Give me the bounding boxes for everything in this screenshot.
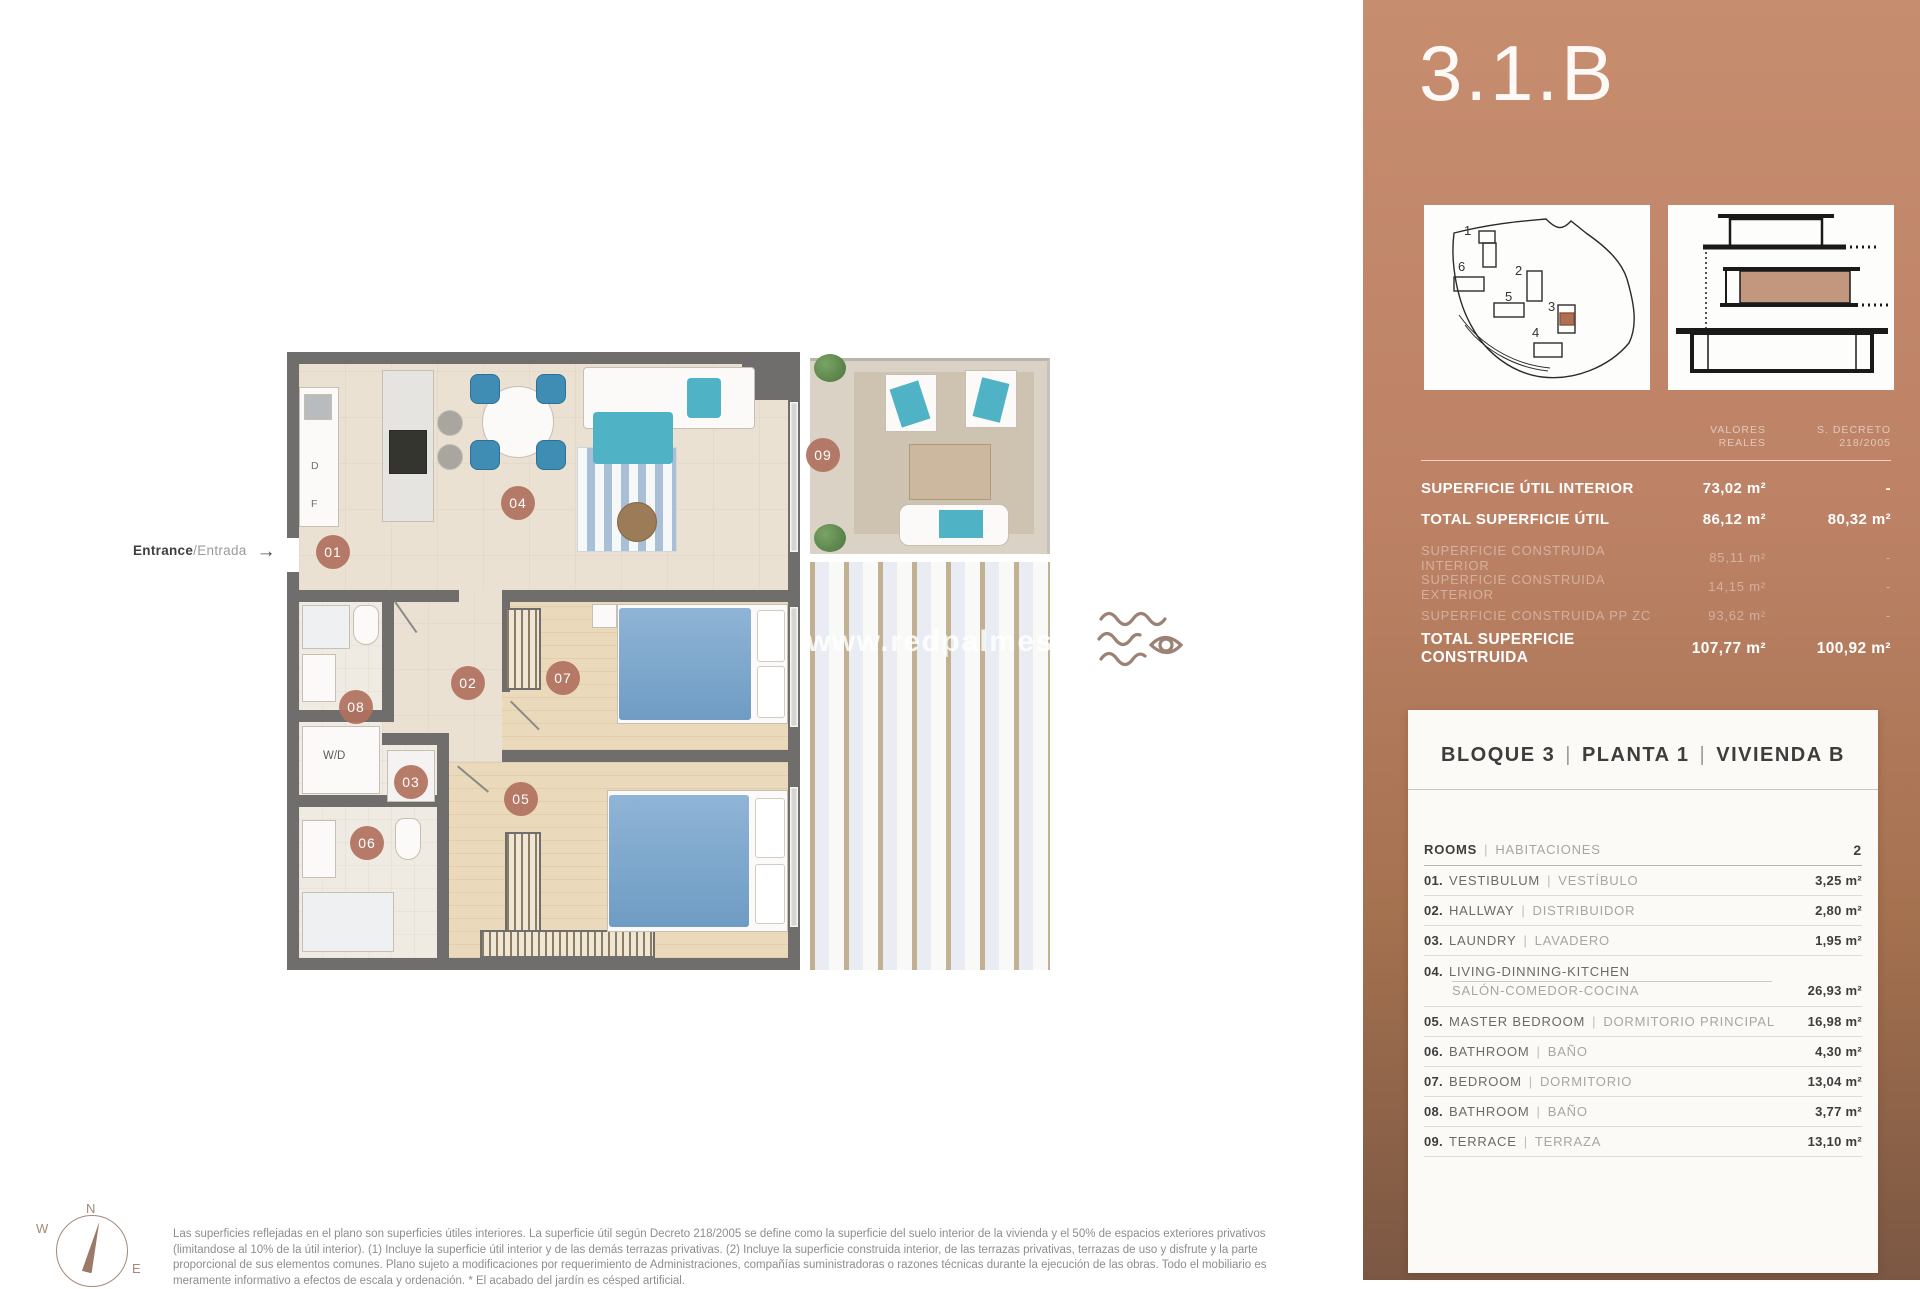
- bed-7-blanket: [619, 608, 751, 720]
- area-real: 73,02 m²: [1656, 480, 1766, 497]
- info-panel: 3.1.B 1 2 3 4 5 6: [1363, 0, 1920, 1280]
- site-building-6: 6: [1458, 259, 1465, 274]
- area-decreto: -: [1766, 579, 1891, 594]
- room-es: BAÑO: [1548, 1104, 1588, 1119]
- room-bubble-05: 05: [504, 782, 538, 816]
- room-pipe: |: [1530, 1104, 1548, 1119]
- unit-card: BLOQUE 3|PLANTA 1|VIVIENDA B ROOMS | HAB…: [1408, 710, 1878, 1273]
- room-en: TERRACE: [1449, 1134, 1517, 1149]
- toilet-6: [395, 818, 421, 860]
- site-building-4: 4: [1532, 325, 1539, 340]
- disclaimer-line: proporcional de sus elementos comunes. P…: [173, 1258, 1353, 1274]
- room-bubble-02: 02: [451, 666, 485, 700]
- room-en: BATHROOM: [1449, 1044, 1530, 1059]
- rooms-table: ROOMS | HABITACIONES 2 01. VESTIBULUM | …: [1424, 834, 1862, 1157]
- room-es: DISTRIBUIDOR: [1533, 903, 1636, 918]
- area-real: 14,15 m²: [1656, 579, 1766, 594]
- room-bubble-08: 08: [339, 690, 373, 724]
- cooktop: [389, 430, 427, 474]
- room-bubble-07: 07: [546, 661, 580, 695]
- site-building-2: 2: [1515, 263, 1522, 278]
- room-area: 16,98 m²: [1808, 1014, 1862, 1029]
- master-window: [790, 787, 798, 927]
- room-bubble-01: 01: [316, 535, 350, 569]
- room-pipe: |: [1530, 1044, 1548, 1059]
- room-row-07: 07. BEDROOM | DORMITORIO 13,04 m²: [1424, 1067, 1862, 1097]
- kitchen-sink: [304, 394, 332, 420]
- header-pipe: |: [1690, 744, 1717, 766]
- room-en: BEDROOM: [1449, 1074, 1522, 1089]
- bed-master-blanket: [609, 795, 749, 927]
- entrance-arrow-icon: →: [257, 541, 276, 562]
- unit-title: 3.1.B: [1419, 28, 1616, 119]
- wardrobe-bed7: [505, 608, 541, 690]
- areas-col2-line1: S. DECRETO: [1817, 424, 1891, 436]
- site-building-3: 3: [1548, 299, 1555, 314]
- area-label: TOTAL SUPERFICIE CONSTRUIDA: [1421, 631, 1656, 667]
- entrance-label: Entrance/Entrada→: [133, 541, 276, 563]
- dining-chair: [470, 374, 500, 404]
- room-en: HALLWAY: [1449, 903, 1514, 918]
- bed-7-pillow: [757, 666, 785, 718]
- wardrobe-master-bottom: [480, 930, 655, 958]
- room-pipe: |: [1517, 1134, 1535, 1149]
- watermark: www.redpalmestate: [807, 625, 1050, 659]
- room-num: 02.: [1424, 903, 1443, 918]
- area-label: SUPERFICIE CONSTRUIDA PP ZC: [1421, 608, 1656, 623]
- plan-page: Entrance/Entrada→: [0, 0, 1363, 1280]
- room-en: BATHROOM: [1449, 1104, 1530, 1119]
- area-label: SUPERFICIE CONSTRUIDA EXTERIOR: [1421, 572, 1656, 602]
- room-row-09: 09. TERRACE | TERRAZA 13,10 m²: [1424, 1127, 1862, 1157]
- compass-rose: N W E: [18, 1203, 158, 1280]
- room-row-02: 02. HALLWAY | DISTRIBUIDOR 2,80 m²: [1424, 896, 1862, 926]
- rooms-header-en: ROOMS: [1424, 842, 1477, 857]
- room-row-08: 08. BATHROOM | BAÑO 3,77 m²: [1424, 1097, 1862, 1127]
- site-building-1: 1: [1464, 223, 1471, 238]
- room-en: MASTER BEDROOM: [1449, 1014, 1585, 1029]
- room-area: 3,77 m²: [1815, 1104, 1862, 1119]
- wall-bath8-top: [299, 590, 459, 602]
- rooms-table-header: ROOMS | HABITACIONES 2: [1424, 834, 1862, 866]
- room-en: VESTIBULUM: [1449, 873, 1540, 888]
- room-num: 08.: [1424, 1104, 1443, 1119]
- wall-bath8-right: [382, 590, 394, 720]
- areas-divider: [1421, 460, 1891, 461]
- wall-left-lower: [287, 572, 299, 970]
- area-row-util-interior: SUPERFICIE ÚTIL INTERIOR 73,02 m² -: [1421, 473, 1891, 504]
- plant: [814, 354, 846, 382]
- area-row-construida-ppzc: SUPERFICIE CONSTRUIDA PP ZC 93,62 m² -: [1421, 601, 1891, 630]
- area-decreto: -: [1766, 550, 1891, 565]
- plant: [814, 524, 846, 552]
- dining-chair: [470, 440, 500, 470]
- coffee-table: [617, 502, 657, 542]
- wall-living-bed7: [502, 590, 800, 602]
- room-pipe: |: [1516, 933, 1534, 948]
- terrace-sliding-door: [790, 402, 798, 552]
- room-pipe: |: [1522, 1074, 1540, 1089]
- wall-bed7-master: [502, 750, 800, 762]
- room-en: LAUNDRY: [1449, 933, 1517, 948]
- area-real: 93,62 m²: [1656, 608, 1766, 623]
- disclaimer-line: meramente informativo a efectos de escal…: [173, 1274, 1353, 1289]
- rooms-header-es: HABITACIONES: [1495, 842, 1600, 857]
- area-real: 107,77 m²: [1656, 640, 1766, 658]
- fridge-label: F: [311, 498, 317, 510]
- room-es: SALÓN-COMEDOR-COCINA: [1452, 983, 1639, 998]
- room-num: 06.: [1424, 1044, 1443, 1059]
- wardrobe-master: [505, 832, 541, 932]
- bar-stool: [437, 410, 463, 436]
- room-area: 13,04 m²: [1808, 1074, 1862, 1089]
- room-area: 2,80 m²: [1815, 903, 1862, 918]
- room-pipe: |: [1514, 903, 1532, 918]
- area-decreto: 100,92 m²: [1766, 640, 1891, 658]
- room-num: 03.: [1424, 933, 1443, 948]
- area-decreto: 80,32 m²: [1766, 511, 1891, 528]
- site-building-5: 5: [1505, 289, 1512, 304]
- header-pipe: |: [1555, 744, 1582, 766]
- bar-stool: [437, 444, 463, 470]
- area-row-total-construida: TOTAL SUPERFICIE CONSTRUIDA 107,77 m² 10…: [1421, 630, 1891, 667]
- room-pipe: |: [1585, 1014, 1603, 1029]
- disclaimer-line: Las superficies reflejadas en el plano s…: [173, 1227, 1353, 1243]
- compass-east: E: [132, 1261, 141, 1276]
- sea-view-icon: [1095, 603, 1195, 678]
- site-plan-map: 1 2 3 4 5 6: [1424, 205, 1650, 390]
- room-row-04: 04. LIVING-DINNING-KITCHEN SALÓN-COMEDOR…: [1424, 956, 1862, 1007]
- area-real: 86,12 m²: [1656, 511, 1766, 528]
- room-row-01: 01. VESTIBULUM | VESTÍBULO 3,25 m²: [1424, 866, 1862, 896]
- floor-plan: W/D D F www.redpalmestate 01 02 03 04 05…: [287, 352, 1057, 970]
- shower-8: [302, 605, 350, 649]
- building-section-map: [1668, 205, 1894, 390]
- area-row-construida-interior: SUPERFICIE CONSTRUIDA INTERIOR 85,11 m² …: [1421, 543, 1891, 572]
- shower-6: [302, 892, 394, 952]
- room-pipe: |: [1540, 873, 1558, 888]
- room-num: 01.: [1424, 873, 1443, 888]
- unit-letter: VIVIENDA B: [1716, 744, 1845, 766]
- bedroom7-window: [790, 607, 798, 727]
- toilet-8: [353, 605, 379, 645]
- rooms-count: 2: [1853, 842, 1862, 858]
- room-num: 05.: [1424, 1014, 1443, 1029]
- area-decreto: -: [1766, 608, 1891, 623]
- pergola-area: [810, 562, 1050, 970]
- unit-block: BLOQUE 3: [1441, 744, 1555, 766]
- rooms-header-pipe: |: [1477, 842, 1495, 857]
- sofa-cushion: [687, 378, 721, 418]
- areas-col1-line1: VALORES: [1710, 424, 1766, 436]
- area-label: SUPERFICIE CONSTRUIDA INTERIOR: [1421, 543, 1656, 573]
- room-row-06: 06. BATHROOM | BAÑO 4,30 m²: [1424, 1037, 1862, 1067]
- room-bubble-09: 09: [806, 438, 840, 472]
- areas-col1-line2: REALES: [1719, 437, 1766, 449]
- washer-dryer-label: W/D: [323, 750, 345, 762]
- compass-north: N: [86, 1201, 95, 1216]
- room-es: TERRAZA: [1535, 1134, 1601, 1149]
- wall-top: [287, 352, 800, 364]
- room-area: 4,30 m²: [1815, 1044, 1862, 1059]
- room-num: 09.: [1424, 1134, 1443, 1149]
- terrace-table: [909, 444, 991, 500]
- room-en: LIVING-DINNING-KITCHEN: [1449, 964, 1630, 979]
- areas-col2-line2: 218/2005: [1839, 437, 1891, 449]
- room-es: LAVADERO: [1535, 933, 1610, 948]
- nightstand: [592, 604, 617, 628]
- room-es: DORMITORIO PRINCIPAL: [1603, 1014, 1775, 1029]
- room-area: 13,10 m²: [1808, 1134, 1862, 1149]
- room-area: 1,95 m²: [1815, 933, 1862, 948]
- wall-bottom: [287, 958, 800, 970]
- areas-col2-header: S. DECRETO 218/2005: [1766, 424, 1891, 450]
- area-row-construida-exterior: SUPERFICIE CONSTRUIDA EXTERIOR 14,15 m² …: [1421, 572, 1891, 601]
- entrance-label-en: Entrance: [133, 543, 193, 558]
- room-row-03: 03. LAUNDRY | LAVADERO 1,95 m²: [1424, 926, 1862, 956]
- room-es: BAÑO: [1548, 1044, 1588, 1059]
- dining-chair: [536, 440, 566, 470]
- room-es: VESTÍBULO: [1558, 873, 1638, 888]
- disclaimer-line: (limitandose al 10% de la útil interior)…: [173, 1243, 1353, 1259]
- brochure-page: { "title": "3.1.B", "entrance": {"en": "…: [0, 0, 1920, 1280]
- bed-master-pillow: [755, 798, 785, 858]
- wall-left-upper: [287, 352, 299, 538]
- room-bubble-06: 06: [350, 826, 384, 860]
- room-num: 07.: [1424, 1074, 1443, 1089]
- bed-7-pillow: [757, 610, 785, 662]
- areas-col1-header: VALORES REALES: [1656, 424, 1766, 450]
- room-num: 04.: [1424, 964, 1443, 979]
- room-row-05: 05. MASTER BEDROOM | DORMITORIO PRINCIPA…: [1424, 1007, 1862, 1037]
- sofa-chaise: [593, 412, 673, 464]
- room-area: 26,93 m²: [1808, 983, 1862, 998]
- compass-west: W: [36, 1221, 48, 1236]
- bed-master-pillow: [755, 864, 785, 924]
- area-real: 85,11 m²: [1656, 550, 1766, 565]
- area-label: SUPERFICIE ÚTIL INTERIOR: [1421, 480, 1656, 497]
- dining-chair: [536, 374, 566, 404]
- sink-8: [302, 654, 336, 702]
- sink-6: [302, 820, 336, 878]
- area-row-total-util: TOTAL SUPERFICIE ÚTIL 86,12 m² 80,32 m²: [1421, 504, 1891, 535]
- unit-floor: PLANTA 1: [1582, 744, 1690, 766]
- card-divider: [1408, 789, 1878, 790]
- terrace-sofa-cushion: [939, 510, 983, 538]
- entrance-label-es: /Entrada: [193, 543, 246, 558]
- area-decreto: -: [1766, 480, 1891, 497]
- unit-card-header: BLOQUE 3|PLANTA 1|VIVIENDA B: [1408, 744, 1878, 767]
- room-row-04-divider: [1452, 981, 1772, 982]
- room-bubble-04: 04: [501, 486, 535, 520]
- areas-table: VALORES REALES S. DECRETO 218/2005 SUPER…: [1421, 424, 1891, 667]
- dishwasher-label: D: [311, 460, 319, 472]
- room-area: 3,25 m²: [1815, 873, 1862, 888]
- wall-bath6-right: [437, 807, 449, 958]
- room-es: DORMITORIO: [1540, 1074, 1632, 1089]
- areas-table-header: VALORES REALES S. DECRETO 218/2005: [1421, 424, 1891, 450]
- area-label: TOTAL SUPERFICIE ÚTIL: [1421, 511, 1656, 528]
- room-bubble-03: 03: [394, 765, 428, 799]
